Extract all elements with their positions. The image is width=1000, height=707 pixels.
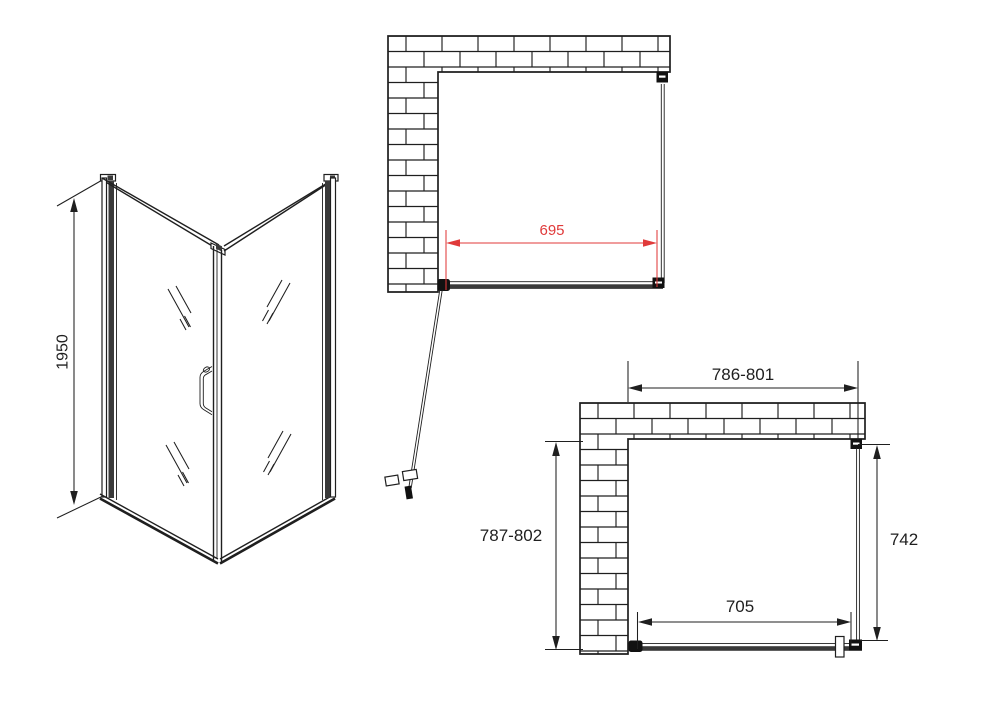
arrow-up-icon [70,198,78,212]
arrow-left-icon [628,384,642,392]
shower-enclosure-technical-drawing: 1950 [0,0,1000,707]
arrow-up-icon [873,445,881,459]
door-hinge [438,279,451,291]
arrow-down-icon [552,636,560,650]
door-handle-knob [836,637,845,658]
opening-depth-dimension: 787-802 [480,442,583,651]
arrow-down-icon [873,627,881,641]
panel-depth-dimension: 742 [858,445,918,642]
arrow-left-icon [446,239,460,247]
door-swing-line [385,290,442,500]
arrow-down-icon [70,491,78,505]
arrow-up-icon [552,442,560,456]
door-width-dimension-label: 695 [539,222,564,239]
fixed-glass-panel [657,72,669,284]
brick-wall [388,36,670,292]
center-corner-profile [211,243,225,563]
wall-profile-left [101,175,117,501]
arrow-right-icon [844,384,858,392]
open-door-handle [385,469,418,499]
perspective-view: 1950 [55,175,338,564]
door-handle [200,366,212,415]
technical-drawing-page: 1950 [0,0,1000,707]
brick-wall [580,403,865,654]
door-width-dimension: 705 [638,597,852,649]
door-width-dimension: 695 [446,222,657,290]
panel-depth-dimension-label: 742 [890,530,918,549]
opening-depth-dimension-label: 787-802 [480,526,542,545]
door-closed-bar [438,278,665,292]
wall-profile-right [323,175,339,501]
height-dimension: 1950 [55,179,104,518]
door-panel [100,178,219,564]
fixed-glass-panel [851,439,863,646]
side-plan-view: 786-801 787-802 742 705 [480,361,918,657]
arrow-left-icon [638,618,652,626]
arrow-right-icon [643,239,657,247]
glass-shine-marks [263,280,292,475]
opening-width-dimension-label: 786-801 [712,365,774,384]
door-hinge [629,641,643,653]
arrow-right-icon [837,618,851,626]
door-width-dimension-label: 705 [726,597,754,616]
side-panel [220,178,336,564]
glass-shine-marks [166,286,191,486]
door-closed-bar [629,637,863,658]
height-dimension-label: 1950 [55,334,72,370]
